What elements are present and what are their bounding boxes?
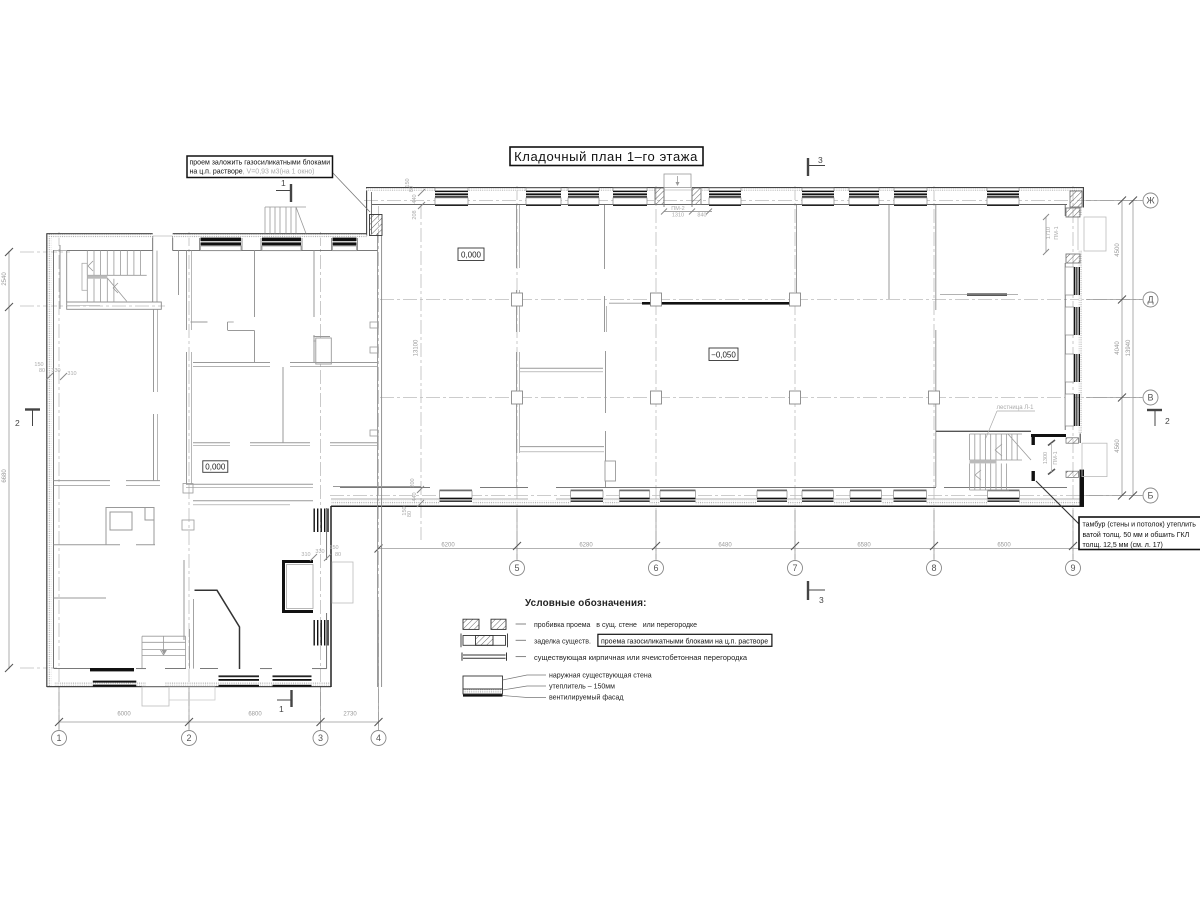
svg-text:проем заложить газосиликатными: проем заложить газосиликатными блоками xyxy=(190,159,331,167)
svg-text:150: 150 xyxy=(329,545,338,551)
svg-text:80: 80 xyxy=(407,511,413,517)
svg-text:7: 7 xyxy=(792,563,797,573)
svg-text:4560: 4560 xyxy=(1115,439,1121,453)
svg-text:Ж: Ж xyxy=(1146,196,1155,206)
svg-text:4: 4 xyxy=(376,733,381,743)
svg-text:3: 3 xyxy=(318,733,323,743)
svg-text:5: 5 xyxy=(514,563,519,573)
svg-text:1710: 1710 xyxy=(1046,227,1052,239)
svg-text:840: 840 xyxy=(697,213,706,219)
svg-text:6280: 6280 xyxy=(579,543,593,549)
svg-text:1300: 1300 xyxy=(1043,452,1049,464)
svg-text:4040: 4040 xyxy=(1115,341,1121,355)
svg-text:на ц.п. растворе, V=0,93 м3(на: на ц.п. растворе, V=0,93 м3(на 1 окно) xyxy=(190,169,315,176)
svg-text:3: 3 xyxy=(819,595,824,605)
svg-text:6580: 6580 xyxy=(857,543,871,549)
svg-text:Кладочный план 1–го этажа: Кладочный план 1–го этажа xyxy=(514,149,698,164)
svg-text:6480: 6480 xyxy=(718,543,732,549)
svg-text:ПМ-1: ПМ-1 xyxy=(1054,226,1060,239)
svg-text:2730: 2730 xyxy=(343,712,357,718)
svg-text:ватой толщ. 50 мм и обшить ГКЛ: ватой толщ. 50 мм и обшить ГКЛ xyxy=(1083,531,1190,539)
svg-text:Условные обозначения:: Условные обозначения: xyxy=(525,598,647,609)
svg-text:13100: 13100 xyxy=(414,339,420,356)
svg-text:−0,050: −0,050 xyxy=(711,351,736,360)
svg-text:440: 440 xyxy=(412,492,418,501)
svg-text:2: 2 xyxy=(186,733,191,743)
svg-text:200: 200 xyxy=(410,478,416,487)
svg-text:тамбур (стены и потолок) утепл: тамбур (стены и потолок) утеплить xyxy=(1083,521,1197,529)
svg-text:утеплитель – 150мм: утеплитель – 150мм xyxy=(549,684,615,691)
svg-text:208: 208 xyxy=(412,210,418,219)
svg-text:ПМ-2: ПМ-2 xyxy=(671,206,684,212)
svg-text:6000: 6000 xyxy=(117,712,131,718)
svg-text:2: 2 xyxy=(15,418,20,428)
svg-text:2: 2 xyxy=(1165,416,1170,426)
svg-text:1310: 1310 xyxy=(672,213,684,219)
svg-text:0,000: 0,000 xyxy=(461,251,482,260)
svg-text:ПМ-1: ПМ-1 xyxy=(1053,451,1059,464)
svg-text:6: 6 xyxy=(653,563,658,573)
svg-text:440: 440 xyxy=(412,194,418,203)
svg-text:пробивка проема в сущ. стене: пробивка проема в сущ. стене или перегор… xyxy=(534,621,697,629)
svg-text:1: 1 xyxy=(56,733,61,743)
svg-text:наружная существующая стена: наружная существующая стена xyxy=(549,673,652,680)
svg-text:1: 1 xyxy=(281,178,286,188)
svg-text:Д: Д xyxy=(1147,295,1153,305)
svg-text:проема газосиликатными блоками: проема газосиликатными блоками на ц.п. р… xyxy=(601,637,768,645)
svg-text:заделка существ.: заделка существ. xyxy=(534,639,591,646)
svg-text:0,000: 0,000 xyxy=(205,463,226,472)
svg-text:80: 80 xyxy=(409,186,415,192)
svg-text:существующая кирпичная или яче: существующая кирпичная или ячеистобетонн… xyxy=(534,653,748,662)
svg-text:13940: 13940 xyxy=(1126,339,1132,356)
svg-text:8: 8 xyxy=(931,563,936,573)
svg-text:80: 80 xyxy=(39,368,45,374)
svg-text:толщ. 12,5 мм (см. л. 17): толщ. 12,5 мм (см. л. 17) xyxy=(1083,542,1163,549)
svg-text:6500: 6500 xyxy=(997,543,1011,549)
svg-text:1: 1 xyxy=(279,704,284,714)
svg-text:4500: 4500 xyxy=(1115,243,1121,257)
svg-text:3: 3 xyxy=(818,155,823,165)
svg-text:2540: 2540 xyxy=(2,272,8,286)
svg-text:лестница Л-1: лестница Л-1 xyxy=(997,405,1035,411)
svg-text:вентилируемый фасад: вентилируемый фасад xyxy=(549,694,623,702)
svg-text:80: 80 xyxy=(335,552,341,558)
svg-text:6800: 6800 xyxy=(248,712,262,718)
svg-text:В: В xyxy=(1147,393,1153,403)
svg-text:6200: 6200 xyxy=(441,543,455,549)
svg-text:310: 310 xyxy=(301,552,310,558)
svg-text:310: 310 xyxy=(67,371,76,377)
svg-text:6680: 6680 xyxy=(2,469,8,483)
svg-text:Б: Б xyxy=(1148,491,1154,501)
svg-text:9: 9 xyxy=(1070,563,1075,573)
